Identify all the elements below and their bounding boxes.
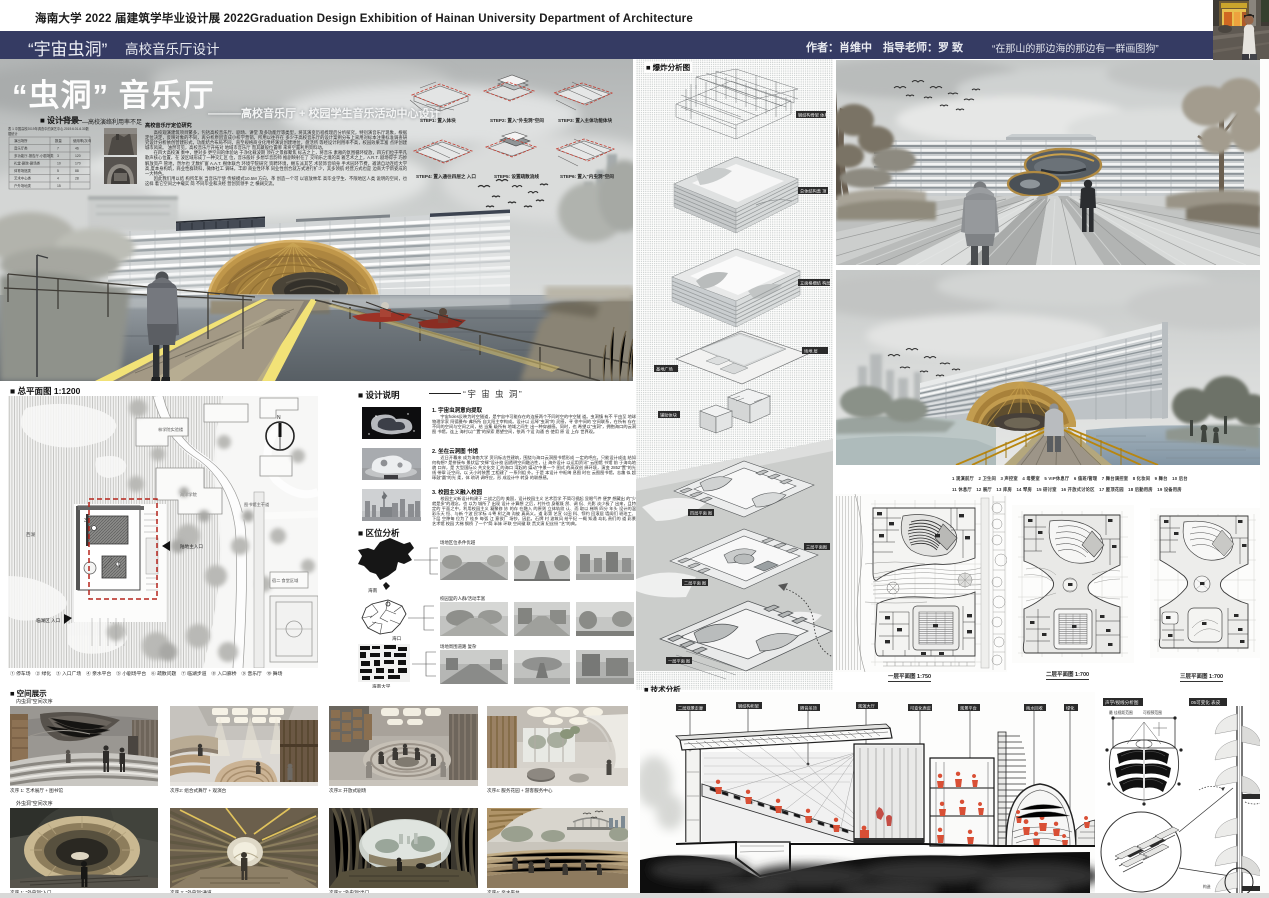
svg-text:艺术中心类: 艺术中心类: [14, 176, 32, 181]
svg-text:立面格栅结 构层: 立面格栅结 构层: [800, 280, 830, 287]
svg-text:STEP5: 设置疏散流线: STEP5: 设置疏散流线: [494, 173, 539, 180]
svg-text:总体结构盖 顶: 总体结构盖 顶: [800, 188, 827, 195]
svg-text:图书馆主干道: 图书馆主干道: [244, 501, 270, 508]
svg-text:STEP3: 置入主体功能体块: STEP3: 置入主体功能体块: [558, 117, 613, 124]
svg-text:校园里的人群/活动丰富: 校园里的人群/活动丰富: [440, 595, 486, 602]
svg-text:4: 4: [57, 177, 59, 181]
svg-text:7: 7: [57, 147, 59, 151]
svg-text:临湖区 入口: 临湖区 入口: [36, 617, 61, 624]
svg-text:宿二 食堂区域: 宿二 食堂区域: [272, 577, 299, 584]
svg-text:15: 15: [57, 184, 61, 188]
svg-text:170: 170: [75, 162, 81, 166]
svg-text:辅助体块: 辅助体块: [660, 412, 678, 419]
svg-text:观演大厅: 观演大厅: [858, 703, 875, 710]
svg-text:28: 28: [75, 177, 79, 181]
svg-text:钢结构桁架: 钢结构桁架: [738, 703, 759, 710]
svg-text:3: 3: [57, 154, 59, 158]
svg-text:05可变化 表皮: 05可变化 表皮: [1191, 699, 1221, 706]
svg-text:海口: 海口: [392, 635, 402, 642]
svg-text:演出场所: 演出场所: [14, 138, 28, 143]
svg-text:可变化表皮: 可变化表皮: [910, 705, 931, 712]
svg-text:二层观景走廊: 二层观景走廊: [678, 705, 703, 712]
svg-text:88: 88: [75, 169, 79, 173]
svg-text:礼堂-剧院-剧场类: 礼堂-剧院-剧场类: [14, 161, 41, 166]
svg-text:120: 120: [75, 154, 81, 158]
svg-text:多功能厅-报告厅-小剧场类: 多功能厅-报告厅-小剧场类: [14, 153, 54, 158]
svg-text:N: N: [277, 415, 281, 421]
svg-text:体育场馆类: 体育场馆类: [14, 168, 32, 173]
svg-text:海南: 海南: [368, 587, 378, 594]
svg-text:数量: 数量: [55, 138, 62, 143]
svg-text:钢结构骨架 体系: 钢结构骨架 体系: [798, 112, 828, 119]
svg-text:可视预范围: 可视预范围: [1143, 710, 1162, 715]
svg-text:陆地主入口: 陆地主入口: [180, 543, 203, 550]
svg-text:STEP4: 置入通往四层之 入口: STEP4: 置入通往四层之 入口: [416, 173, 476, 180]
svg-text:基地广场: 基地广场: [656, 366, 673, 373]
svg-text:使用率(次/年): 使用率(次/年): [73, 138, 91, 143]
svg-text:STEP1: 置入体块: STEP1: 置入体块: [420, 117, 456, 124]
svg-text:STEP2: 置入"外虫洞"空间: STEP2: 置入"外虫洞"空间: [490, 117, 544, 124]
svg-text:5: 5: [57, 169, 59, 173]
svg-text:场地 层: 场地 层: [804, 348, 818, 355]
svg-text:音乐厅类: 音乐厅类: [14, 146, 28, 151]
svg-text:西湖: 西湖: [26, 531, 36, 538]
svg-text:雨水回收: 雨水回收: [1026, 705, 1044, 712]
svg-text:海南大学: 海南大学: [372, 683, 391, 688]
svg-text:户外场地类: 户外场地类: [14, 183, 32, 188]
svg-text:构造: 构造: [1203, 884, 1211, 889]
svg-text:10: 10: [57, 162, 61, 166]
svg-text:最 佳视距范围: 最 佳视距范围: [1109, 710, 1133, 715]
svg-text:STEP6: 置入"内虫洞"空间: STEP6: 置入"内虫洞"空间: [560, 173, 614, 180]
svg-text:场地周围道路 复杂: 场地周围道路 复杂: [440, 643, 477, 650]
svg-text:隔音吊顶: 隔音吊顶: [800, 705, 818, 712]
svg-text:林学院实验楼: 林学院实验楼: [158, 426, 183, 433]
svg-text:场地区位条件优越: 场地区位条件优越: [440, 539, 476, 546]
svg-text:绿化: 绿化: [1066, 705, 1075, 712]
svg-text:46: 46: [75, 147, 79, 151]
svg-text:观景平台: 观景平台: [960, 705, 977, 712]
svg-text:声学/视线分析图: 声学/视线分析图: [1105, 699, 1139, 706]
